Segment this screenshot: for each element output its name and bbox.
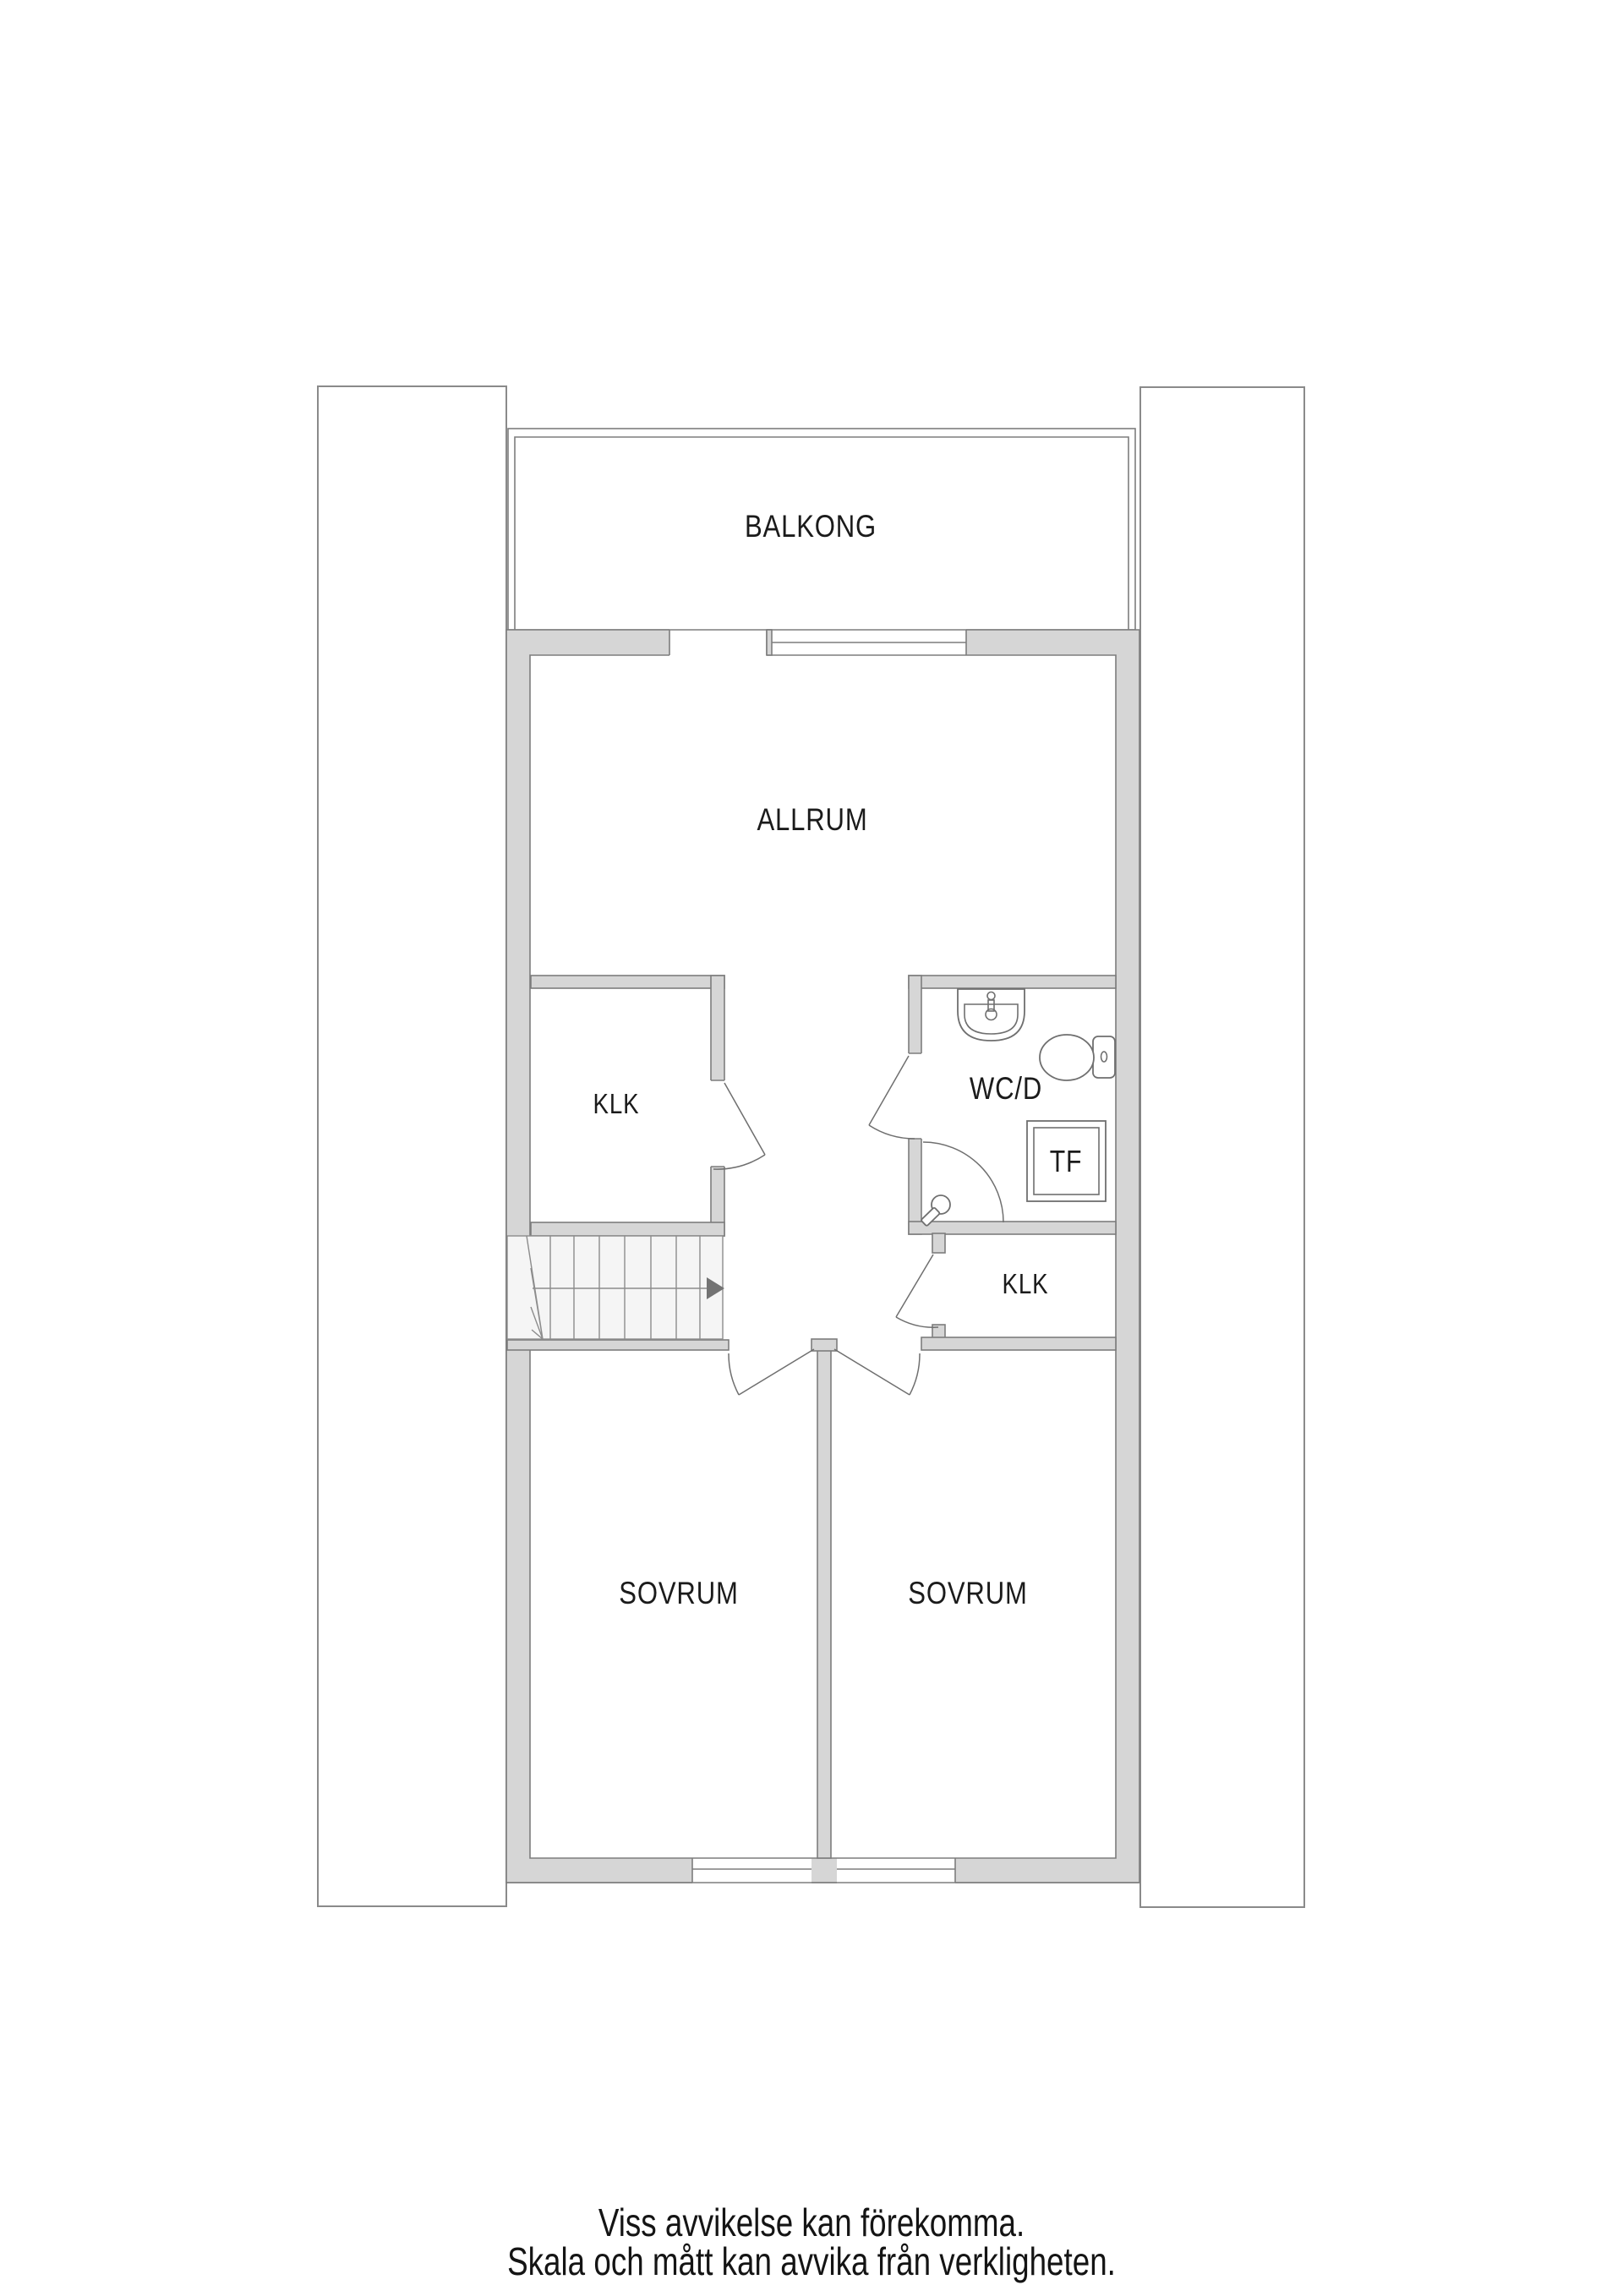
sink-icon <box>958 989 1025 1041</box>
floor-plan-canvas: BALKONG ALLRUM KLK WC/D TF KLK SOVRUM SO… <box>0 0 1623 2296</box>
toilet-tank <box>1093 1036 1115 1078</box>
klk-upper-top-wall <box>531 976 724 988</box>
label-wcd: WC/D <box>970 1072 1042 1107</box>
label-allrum: ALLRUM <box>757 803 867 838</box>
wcd-top-wall <box>909 976 1116 988</box>
disclaimer: Viss avvikelse kan förekomma. Skala och … <box>507 2200 1116 2283</box>
disclaimer-line-1: Viss avvikelse kan förekomma. <box>598 2200 1025 2244</box>
label-balkong: BALKONG <box>745 510 877 544</box>
label-sovrum-left: SOVRUM <box>619 1577 738 1611</box>
klk-upper-door-opening <box>710 1080 726 1167</box>
klk-lower-bottom-wall <box>921 1337 1116 1350</box>
balcony-door-opening <box>669 629 767 658</box>
wcd-bottom-wall <box>909 1222 1116 1234</box>
bedroom-divider-head <box>811 1339 837 1351</box>
wcd-door-opening <box>908 1053 922 1139</box>
staircase <box>507 1236 724 1339</box>
bedroom-divider-wall <box>817 1350 831 1858</box>
sovrum-right-window-opening <box>837 1857 955 1883</box>
neighbor-unit-left <box>318 386 506 1906</box>
stairs-bottom-wall <box>507 1340 729 1350</box>
sovrum-left-window-opening <box>692 1857 811 1883</box>
page-background <box>0 0 1623 2296</box>
label-klk-lower: KLK <box>1003 1269 1049 1300</box>
klk-lower-left-stub-top <box>932 1233 945 1253</box>
sink-outer <box>958 989 1025 1041</box>
klk-upper-bottom-wall <box>531 1222 724 1236</box>
label-klk-upper: KLK <box>593 1089 640 1120</box>
toilet-bowl <box>1040 1035 1094 1080</box>
label-sovrum-right: SOVRUM <box>908 1577 1027 1611</box>
allrum-window-end-cap <box>767 630 772 655</box>
toilet-icon <box>1040 1035 1115 1080</box>
disclaimer-line-2: Skala och mått kan avvika från verklighe… <box>507 2239 1116 2283</box>
label-tf: TF <box>1050 1145 1083 1179</box>
neighbor-unit-right <box>1140 387 1304 1907</box>
